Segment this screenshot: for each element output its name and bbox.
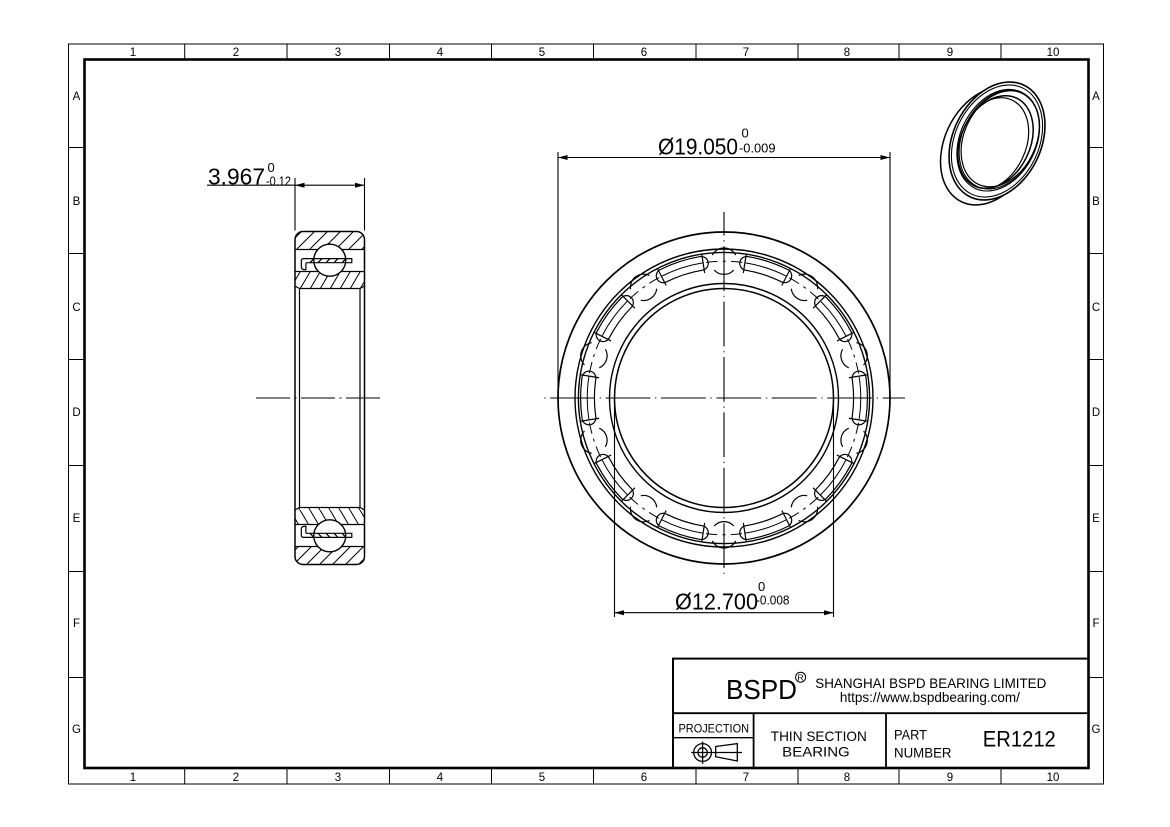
svg-text:8: 8 <box>844 772 850 784</box>
svg-text:Ø12.700: Ø12.700 <box>675 589 758 615</box>
svg-text:2: 2 <box>233 772 239 784</box>
svg-text:7: 7 <box>743 47 749 59</box>
svg-text:3: 3 <box>335 47 341 59</box>
svg-text:-0.008: -0.008 <box>756 593 790 608</box>
svg-text:3.967: 3.967 <box>208 164 265 190</box>
svg-text:10: 10 <box>1047 772 1060 784</box>
svg-text:6: 6 <box>641 47 647 59</box>
svg-text:G: G <box>1092 724 1101 736</box>
svg-text:5: 5 <box>539 47 545 59</box>
svg-text:NUMBER: NUMBER <box>894 745 952 761</box>
svg-text:3: 3 <box>335 772 341 784</box>
svg-text:B: B <box>73 196 81 208</box>
svg-text:9: 9 <box>947 47 953 59</box>
svg-text:-0.12: -0.12 <box>266 174 291 189</box>
svg-text:-0.009: -0.009 <box>739 141 776 156</box>
svg-text:THIN SECTION: THIN SECTION <box>771 728 867 744</box>
svg-text:5: 5 <box>539 772 545 784</box>
svg-text:BSPD: BSPD <box>726 674 797 705</box>
svg-text:ER1212: ER1212 <box>983 727 1056 752</box>
svg-text:4: 4 <box>437 772 444 784</box>
svg-text:R: R <box>798 672 804 682</box>
svg-text:1: 1 <box>130 47 136 59</box>
svg-text:C: C <box>72 302 80 314</box>
svg-text:C: C <box>1092 302 1100 314</box>
svg-text:BEARING: BEARING <box>782 744 850 760</box>
svg-text:F: F <box>73 618 80 630</box>
svg-text:F: F <box>1092 618 1099 630</box>
svg-text:E: E <box>1092 513 1100 525</box>
svg-text:0: 0 <box>742 126 749 141</box>
svg-text:1: 1 <box>130 772 136 784</box>
svg-text:10: 10 <box>1047 47 1060 59</box>
svg-text:6: 6 <box>641 772 647 784</box>
svg-text:A: A <box>73 91 81 103</box>
svg-text:7: 7 <box>743 772 749 784</box>
svg-text:PART: PART <box>894 726 927 742</box>
svg-text:D: D <box>72 407 80 419</box>
svg-text:2: 2 <box>233 47 239 59</box>
svg-text:Ø19.050: Ø19.050 <box>658 134 738 160</box>
svg-text:E: E <box>73 513 81 525</box>
svg-text:8: 8 <box>844 47 850 59</box>
svg-text:G: G <box>72 724 81 736</box>
svg-text:B: B <box>1092 196 1100 208</box>
svg-text:D: D <box>1092 407 1100 419</box>
svg-text:A: A <box>1092 91 1100 103</box>
svg-text:4: 4 <box>437 47 444 59</box>
svg-text:9: 9 <box>947 772 953 784</box>
svg-text:https://www.bspdbearing.com/: https://www.bspdbearing.com/ <box>840 689 1020 705</box>
svg-text:PROJECTION: PROJECTION <box>679 724 750 736</box>
